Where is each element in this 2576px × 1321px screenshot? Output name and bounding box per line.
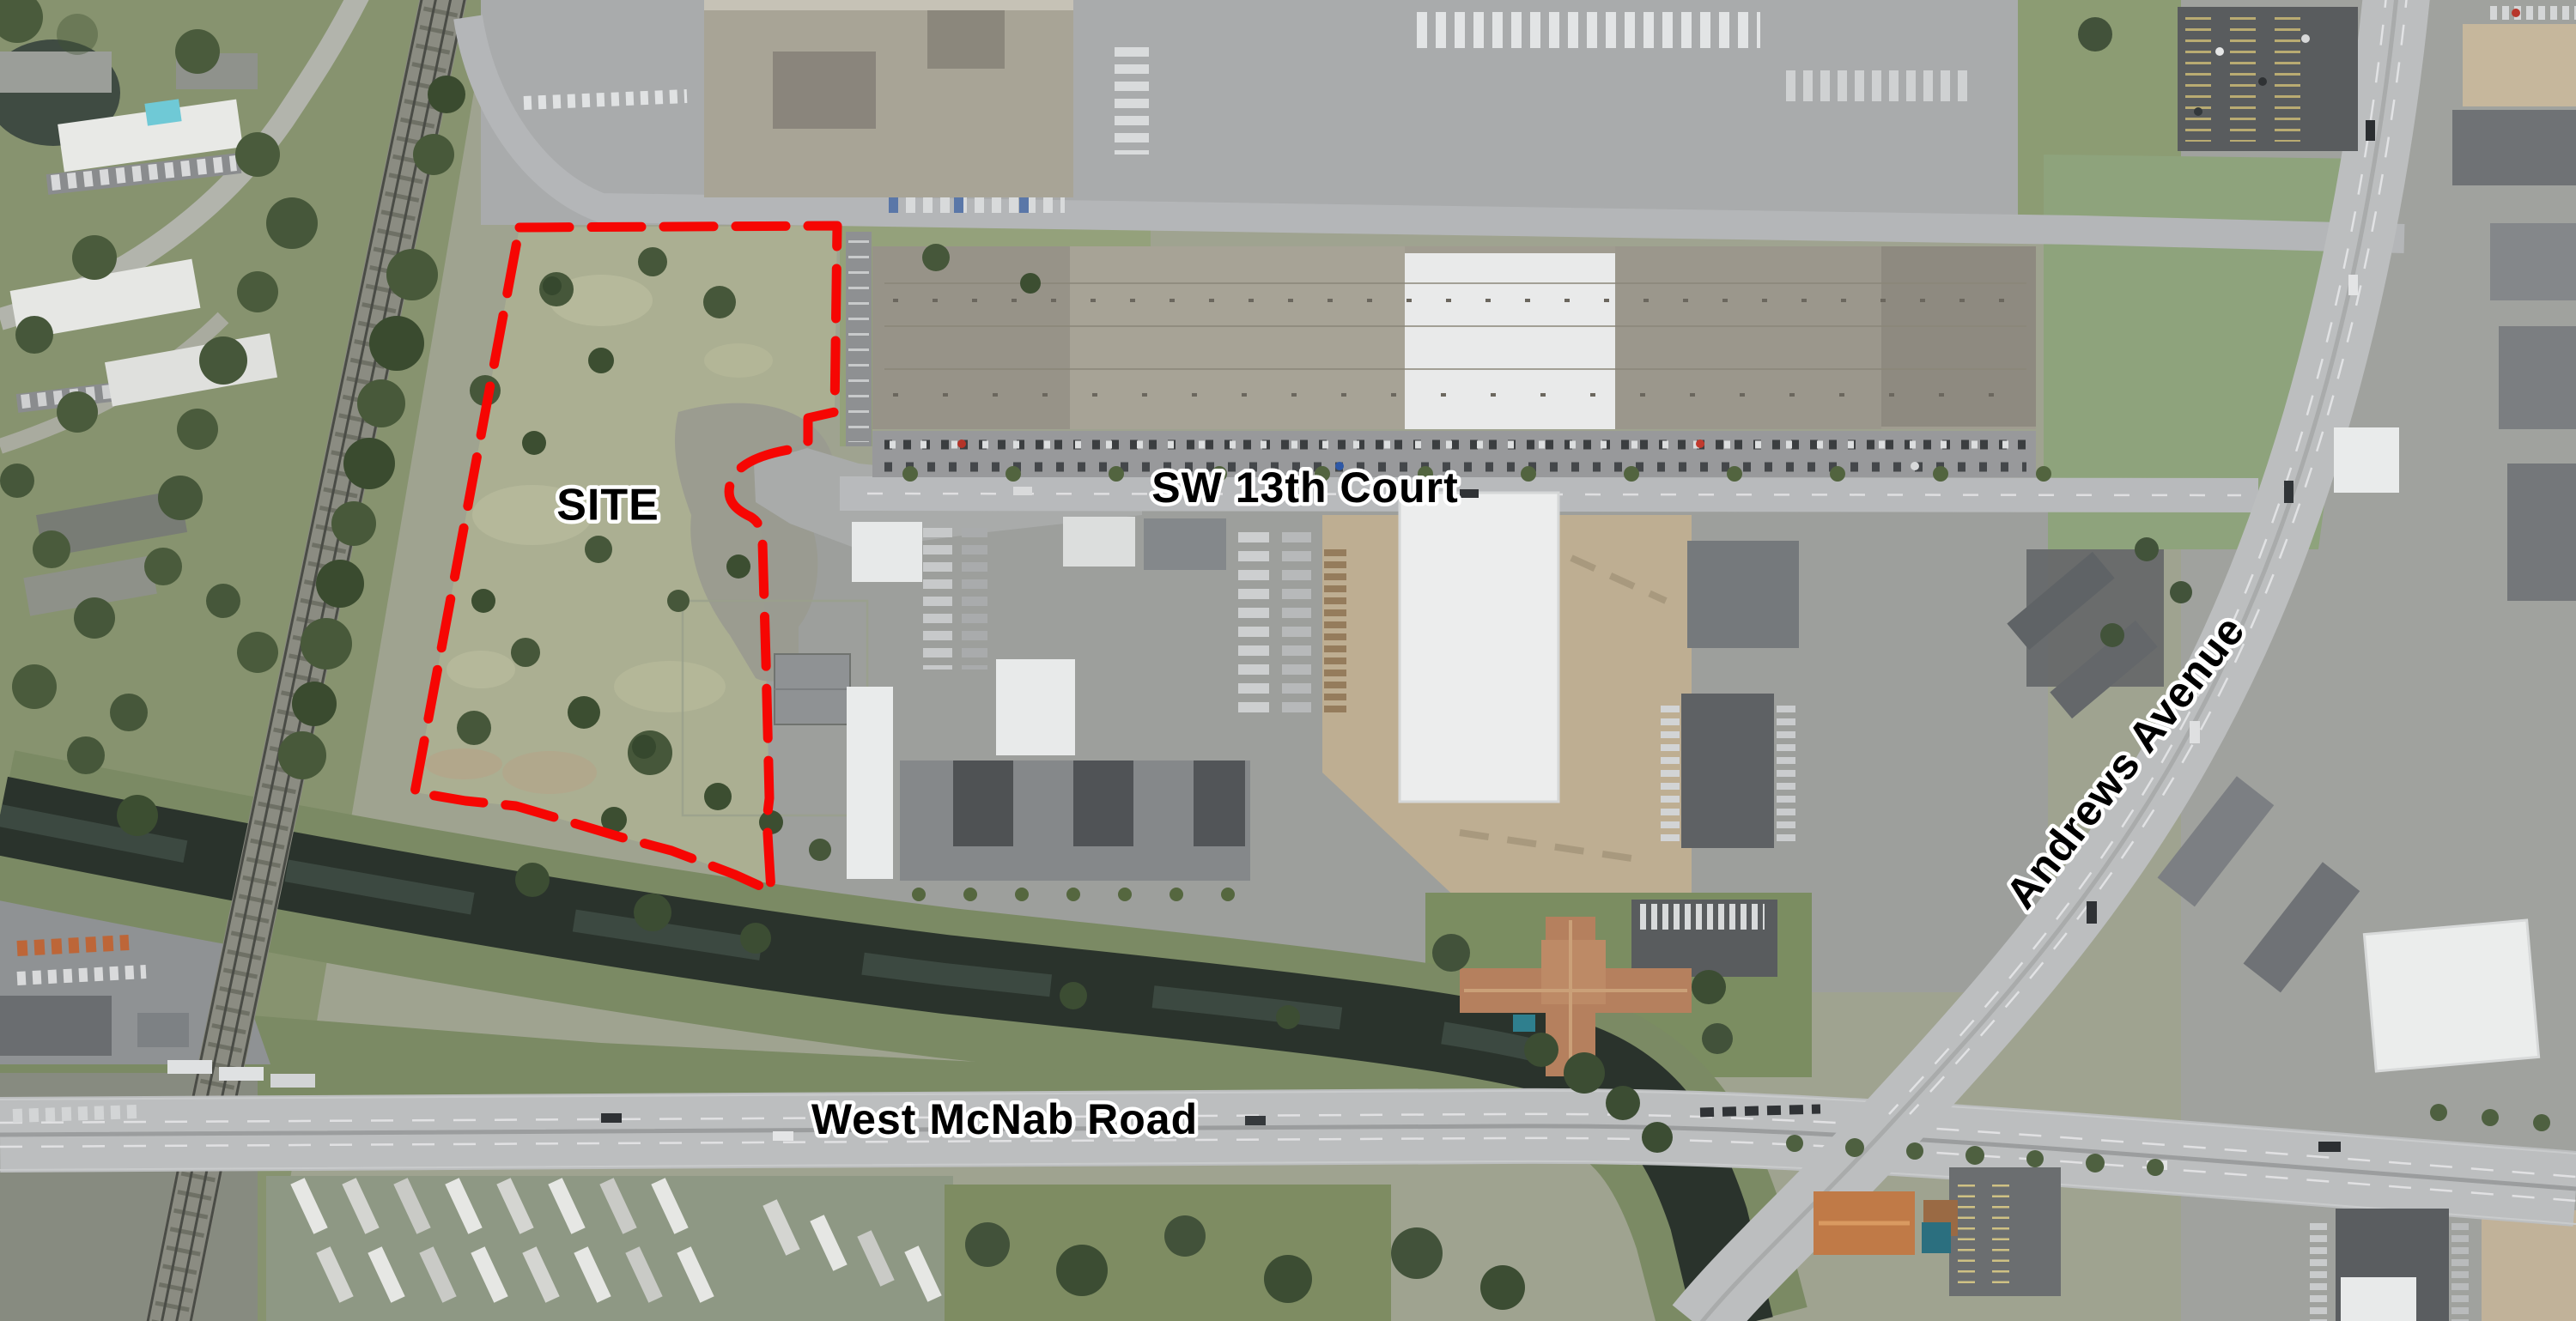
map-label-sw-13th-court: SW 13th Court [1151,464,1458,512]
white-warehouse-roof [1400,493,1558,802]
swimming-pool [144,99,181,125]
map-label-west-mcnab-road: West McNab Road [811,1095,1198,1143]
aerial-map: SITESW 13th CourtAndrews AvenueWest McNa… [0,0,2576,1321]
map-label-site: SITE [556,481,659,530]
aerial-photo-canvas: SITESW 13th CourtAndrews AvenueWest McNa… [0,0,2576,1321]
